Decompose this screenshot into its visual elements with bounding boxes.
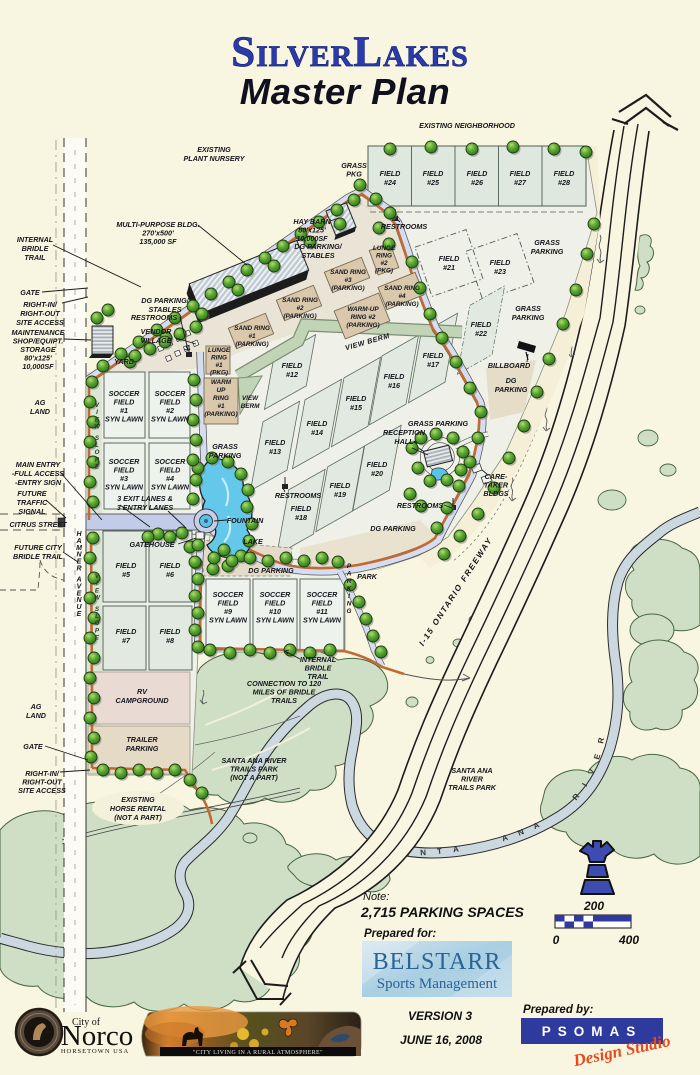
svg-text:RESTROOMS: RESTROOMS — [381, 222, 428, 231]
svg-text:EXISTING NEIGHBORHOOD: EXISTING NEIGHBORHOOD — [419, 121, 515, 130]
svg-text:VIEWBERM: VIEWBERM — [241, 395, 260, 410]
svg-text:Note:: Note: — [363, 891, 389, 903]
svg-text:PARK: PARK — [357, 572, 378, 581]
svg-text:Prepared by:: Prepared by: — [523, 1004, 593, 1016]
svg-text:CARE-TAKERBLDGS: CARE-TAKERBLDGS — [483, 472, 508, 498]
svg-text:FOUNTAIN: FOUNTAIN — [227, 516, 264, 525]
svg-text:2,715 PARKING SPACES: 2,715 PARKING SPACES — [360, 904, 525, 920]
svg-text:GATE: GATE — [23, 742, 43, 751]
svg-text:RESTROOMS: RESTROOMS — [397, 501, 444, 510]
svg-text:GATEHOUSE: GATEHOUSE — [130, 540, 175, 549]
svg-text:Master Plan: Master Plan — [240, 71, 450, 112]
svg-text:GATE: GATE — [20, 288, 40, 297]
svg-text:0: 0 — [553, 933, 560, 947]
svg-text:RESTROOMS: RESTROOMS — [275, 491, 322, 500]
svg-text:200: 200 — [583, 899, 604, 913]
svg-text:HORSETOWN USA: HORSETOWN USA — [61, 1048, 129, 1055]
svg-text:TRAILERPARKING: TRAILERPARKING — [126, 735, 159, 753]
svg-text:JUNE 16, 2008: JUNE 16, 2008 — [400, 1033, 482, 1047]
svg-text:GRASSPARKING: GRASSPARKING — [209, 442, 242, 460]
svg-text:GRASSPARKING: GRASSPARKING — [512, 304, 545, 322]
svg-text:VERSION 3: VERSION 3 — [408, 1009, 472, 1023]
svg-text:"CITY LIVING IN A RURAL ATMOSP: "CITY LIVING IN A RURAL ATMOSPHERE" — [193, 1050, 323, 1056]
svg-text:LAKE: LAKE — [243, 537, 263, 546]
svg-text:DG PARKING: DG PARKING — [248, 566, 294, 575]
svg-text:400: 400 — [618, 933, 639, 947]
svg-text:FUTURE CITYBRIDLE TRAIL: FUTURE CITYBRIDLE TRAIL — [13, 543, 63, 561]
svg-text:SANTA ANA RIVERTRAILS PARK(NOT: SANTA ANA RIVERTRAILS PARK(NOT A PART) — [222, 756, 288, 782]
svg-text:GRASSPARKING: GRASSPARKING — [531, 238, 564, 256]
svg-text:VENDORVILLAGE: VENDORVILLAGE — [140, 327, 172, 345]
svg-text:MAIN ENTRY-FULL ACCESS-ENTRY S: MAIN ENTRY-FULL ACCESS-ENTRY SIGN — [12, 460, 65, 487]
svg-text:DG PARKING: DG PARKING — [370, 524, 416, 533]
svg-text:WARM-UPRING #2(PARKING): WARM-UPRING #2(PARKING) — [346, 306, 379, 329]
svg-text:Sports Management: Sports Management — [377, 976, 498, 992]
svg-text:RESTROOMS: RESTROOMS — [131, 313, 178, 322]
svg-text:FUTURETRAFFICSIGNAL: FUTURETRAFFICSIGNAL — [17, 489, 49, 516]
svg-text:BILLBOARD: BILLBOARD — [488, 361, 530, 370]
svg-text:GRASS PARKING: GRASS PARKING — [408, 419, 469, 428]
svg-text:PARKING: PARKING — [346, 563, 352, 615]
svg-text:CITRUS STREET: CITRUS STREET — [9, 520, 67, 529]
svg-text:PSOMAS: PSOMAS — [542, 1024, 643, 1039]
svg-text:YARD: YARD — [114, 357, 134, 366]
svg-text:Prepared for:: Prepared for: — [364, 928, 436, 940]
svg-text:BELSTARR: BELSTARR — [373, 949, 502, 975]
